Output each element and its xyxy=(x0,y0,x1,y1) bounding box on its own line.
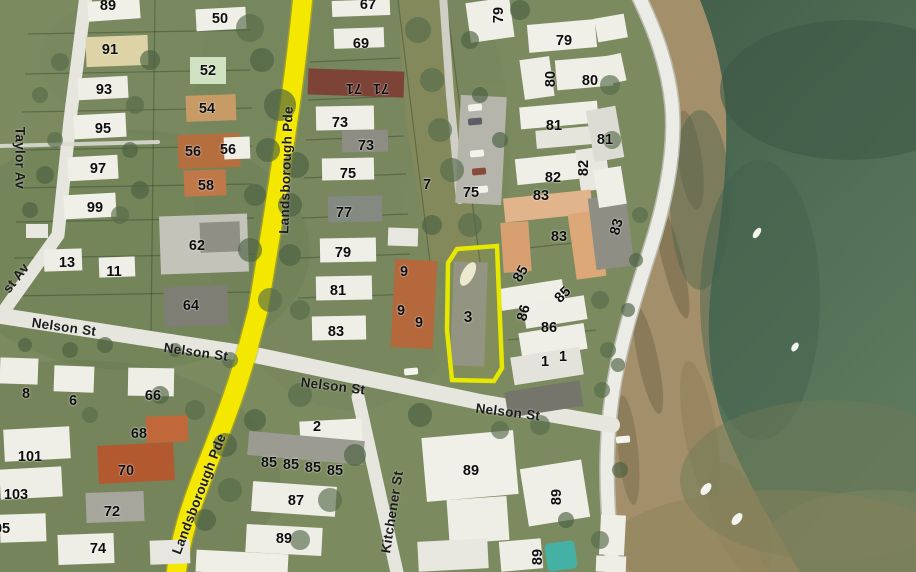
lot-number-72: 72 xyxy=(104,504,120,520)
lot-number-56: 56 xyxy=(220,142,236,158)
lot-number-89: 89 xyxy=(463,463,479,479)
lot-number-9: 9 xyxy=(397,303,405,319)
street-label: Nelson St xyxy=(31,315,97,339)
lot-number-79: 79 xyxy=(335,245,351,261)
street-label: Kitchener St xyxy=(378,470,406,554)
street-label: Landsborough Pde xyxy=(169,432,229,557)
lot-number-70: 70 xyxy=(118,463,134,479)
lot-number-81: 81 xyxy=(597,132,613,148)
label-layer: 8950915293549556569758996213116467697171… xyxy=(0,0,916,572)
lot-number-83: 83 xyxy=(607,217,627,237)
lot-number-85: 85 xyxy=(305,460,321,476)
lot-number-13: 13 xyxy=(59,255,75,271)
lot-number-73: 73 xyxy=(332,115,348,131)
lot-number-2: 2 xyxy=(313,419,321,435)
lot-number-103: 103 xyxy=(4,487,28,503)
lot-number-74: 74 xyxy=(90,541,106,557)
lot-number-80: 80 xyxy=(582,73,598,89)
lot-number-101: 101 xyxy=(18,449,42,465)
aerial-map[interactable]: 8950915293549556569758996213116467697171… xyxy=(0,0,916,572)
lot-number-9: 9 xyxy=(400,264,408,280)
lot-number-66: 66 xyxy=(145,388,161,404)
lot-number-75: 75 xyxy=(340,166,356,182)
lot-number-7: 7 xyxy=(423,177,431,193)
lot-number-89: 89 xyxy=(530,549,546,565)
street-label: Landsborough Pde xyxy=(276,106,295,234)
lot-number-77: 77 xyxy=(336,205,352,221)
street-label: st Av xyxy=(0,260,32,296)
lot-number-97: 97 xyxy=(90,161,106,177)
lot-number-56: 56 xyxy=(185,144,201,160)
lot-number-68: 68 xyxy=(131,426,147,442)
lot-number-11: 11 xyxy=(106,264,121,280)
lot-number-85: 85 xyxy=(327,463,343,479)
lot-number-67: 67 xyxy=(360,0,376,13)
lot-number-83: 83 xyxy=(328,324,344,340)
lot-number-85: 85 xyxy=(261,455,277,471)
lot-number-89: 89 xyxy=(276,531,292,547)
lot-number-8: 8 xyxy=(22,386,30,402)
lot-number-1: 1 xyxy=(541,354,549,370)
lot-number-81: 81 xyxy=(330,283,346,299)
lot-number-79: 79 xyxy=(556,33,572,49)
lot-number-80: 80 xyxy=(543,71,559,87)
lot-number-79: 79 xyxy=(491,7,507,23)
lot-number-91: 91 xyxy=(102,42,118,58)
lot-number-82: 82 xyxy=(545,170,561,186)
lot-number-89: 89 xyxy=(549,489,565,505)
lot-number-86: 86 xyxy=(541,320,557,336)
lot-number-99: 99 xyxy=(87,200,103,216)
lot-number-3: 3 xyxy=(464,309,473,327)
lot-number-6: 6 xyxy=(69,393,77,409)
lot-number-89: 89 xyxy=(100,0,116,14)
lot-number-87: 87 xyxy=(288,493,304,509)
lot-number-9: 9 xyxy=(415,315,423,331)
lot-number-58: 58 xyxy=(198,178,214,194)
lot-number-105: 105 xyxy=(0,521,10,537)
lot-number-75: 75 xyxy=(463,185,479,201)
street-label: Nelson St xyxy=(163,340,229,364)
lot-number-83: 83 xyxy=(551,229,567,245)
lot-number-54: 54 xyxy=(199,101,215,117)
lot-number-82: 82 xyxy=(576,160,592,176)
lot-number-50: 50 xyxy=(212,11,228,27)
lot-number-83: 83 xyxy=(533,188,549,204)
lot-number-71: 71 xyxy=(373,80,389,96)
lot-number-71: 71 xyxy=(346,80,362,96)
lot-number-64: 64 xyxy=(183,298,199,314)
lot-number-85: 85 xyxy=(283,457,299,473)
lot-number-93: 93 xyxy=(96,82,112,98)
lot-number-81: 81 xyxy=(546,118,562,134)
lot-number-85: 85 xyxy=(510,263,532,285)
lot-number-85: 85 xyxy=(552,284,575,307)
street-label: Nelson St xyxy=(300,375,366,398)
lot-number-1: 1 xyxy=(559,349,567,365)
lot-number-69: 69 xyxy=(353,36,369,52)
lot-number-73: 73 xyxy=(358,138,374,154)
lot-number-62: 62 xyxy=(189,238,205,254)
lot-number-86: 86 xyxy=(514,303,534,323)
street-label: Nelson St xyxy=(475,401,541,424)
lot-number-52: 52 xyxy=(200,63,216,79)
street-label: Taylor Av xyxy=(13,127,28,189)
lot-number-95: 95 xyxy=(95,121,111,137)
